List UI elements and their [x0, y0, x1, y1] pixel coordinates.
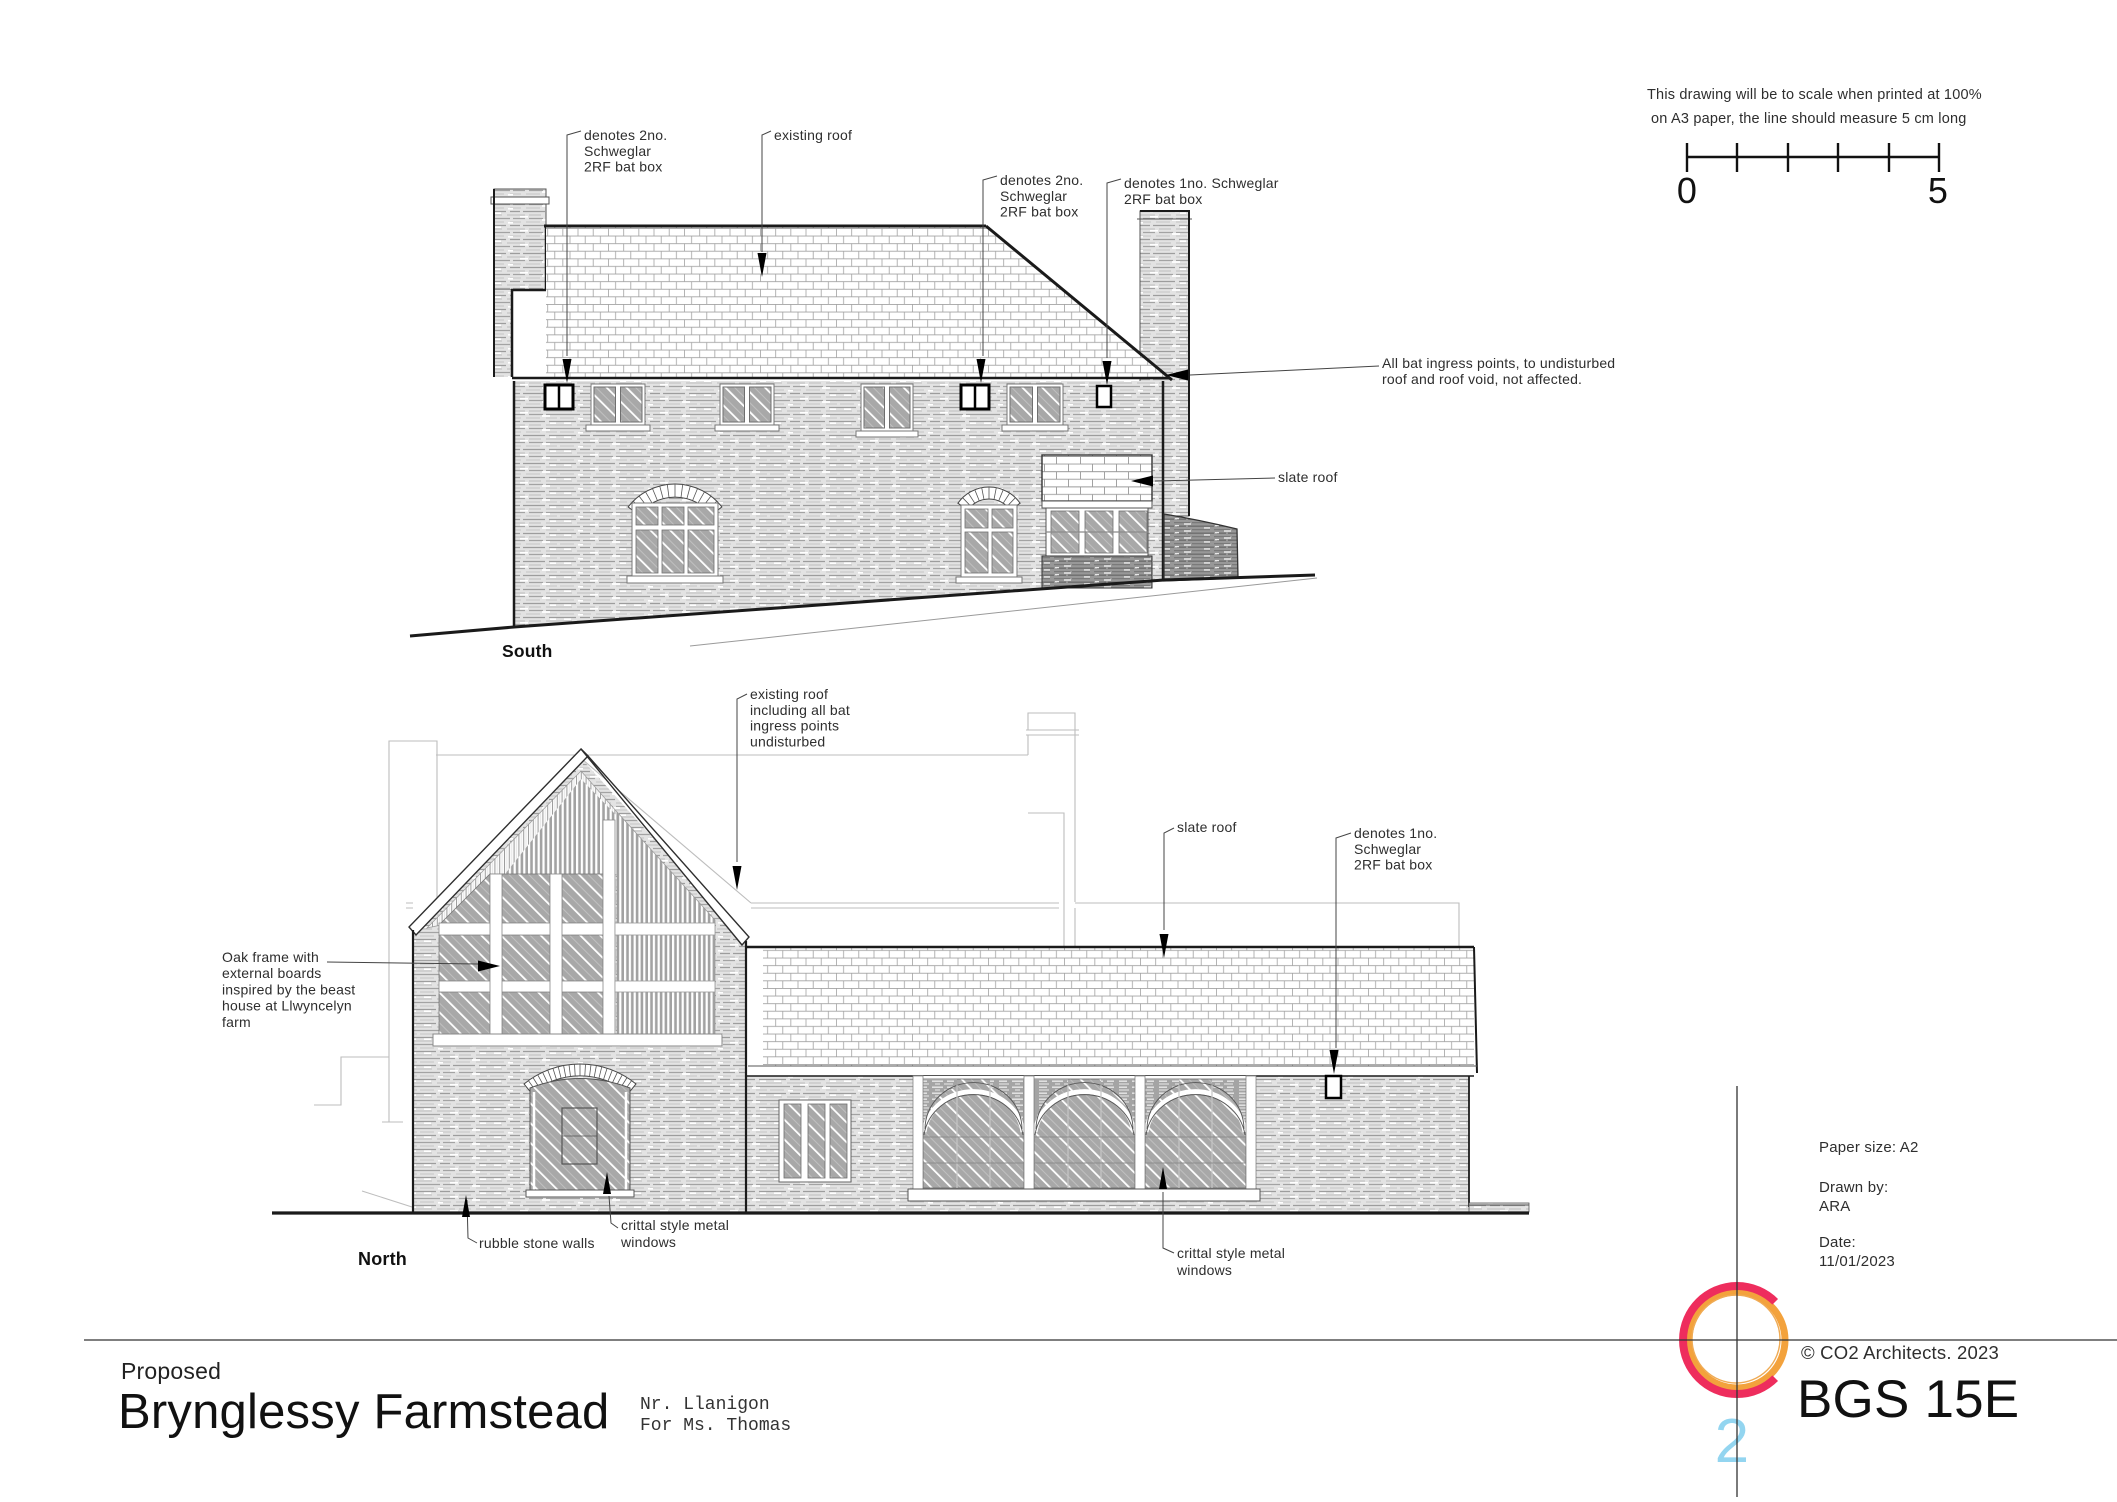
- svg-text:windows: windows: [620, 1234, 676, 1250]
- svg-text:windows: windows: [1176, 1262, 1232, 1278]
- svg-text:2: 2: [1715, 1407, 1750, 1476]
- svg-text:South: South: [502, 641, 553, 661]
- svg-text:Brynglessy Farmstead: Brynglessy Farmstead: [118, 1385, 609, 1439]
- svg-text:All bat ingress points, to und: All bat ingress points, to undisturbed: [1382, 355, 1615, 371]
- svg-text:11/01/2023: 11/01/2023: [1819, 1253, 1895, 1270]
- svg-text:crittal style metal: crittal style metal: [621, 1217, 729, 1233]
- svg-text:Schweglar: Schweglar: [1000, 188, 1067, 204]
- svg-text:2RF bat box: 2RF bat box: [1000, 204, 1078, 220]
- svg-text:external boards: external boards: [222, 965, 322, 981]
- svg-text:denotes 1no. Schweglar: denotes 1no. Schweglar: [1124, 175, 1279, 191]
- svg-text:This drawing will be to scale: This drawing will be to scale when print…: [1647, 87, 1982, 103]
- svg-text:North: North: [358, 1249, 407, 1269]
- svg-text:Schweglar: Schweglar: [1354, 841, 1421, 857]
- svg-text:ARA: ARA: [1819, 1198, 1850, 1215]
- svg-text:For Ms. Thomas: For Ms. Thomas: [640, 1416, 791, 1436]
- svg-text:denotes 2no.: denotes 2no.: [1000, 172, 1083, 188]
- svg-text:crittal style metal: crittal style metal: [1177, 1245, 1285, 1261]
- svg-text:slate roof: slate roof: [1177, 819, 1237, 835]
- svg-text:© CO2 Architects. 2023: © CO2 Architects. 2023: [1801, 1342, 1999, 1363]
- svg-text:Oak frame with: Oak frame with: [222, 949, 319, 965]
- svg-text:0: 0: [1677, 170, 1697, 211]
- svg-text:Proposed: Proposed: [121, 1358, 221, 1384]
- svg-text:2RF bat box: 2RF bat box: [1124, 191, 1202, 207]
- svg-text:existing roof: existing roof: [774, 127, 852, 143]
- svg-text:2RF bat box: 2RF bat box: [1354, 857, 1432, 873]
- svg-text:inspired by the beast: inspired by the beast: [222, 981, 355, 997]
- svg-text:5: 5: [1928, 170, 1948, 211]
- svg-text:denotes 2no.: denotes 2no.: [584, 127, 667, 143]
- svg-text:ingress points: ingress points: [750, 718, 839, 734]
- svg-text:Date:: Date:: [1819, 1234, 1856, 1251]
- svg-text:existing roof: existing roof: [750, 686, 828, 702]
- svg-text:Drawn by:: Drawn by:: [1819, 1179, 1888, 1196]
- svg-text:BGS 15E: BGS 15E: [1797, 1370, 2019, 1429]
- svg-text:Schweglar: Schweglar: [584, 143, 651, 159]
- svg-text:farm: farm: [222, 1014, 251, 1030]
- svg-text:Paper size: A2: Paper size: A2: [1819, 1139, 1919, 1156]
- svg-text:denotes 1no.: denotes 1no.: [1354, 825, 1437, 841]
- svg-text:house at Llwyncelyn: house at Llwyncelyn: [222, 998, 352, 1014]
- svg-text:Nr. Llanigon: Nr. Llanigon: [640, 1395, 770, 1415]
- svg-text:rubble stone walls: rubble stone walls: [479, 1235, 595, 1251]
- svg-text:roof and roof void, not affect: roof and roof void, not affected.: [1382, 371, 1582, 387]
- svg-text:2RF bat box: 2RF bat box: [584, 159, 662, 175]
- svg-text:slate roof: slate roof: [1278, 469, 1338, 485]
- svg-text:including all bat: including all bat: [750, 702, 850, 718]
- svg-text:undisturbed: undisturbed: [750, 733, 825, 749]
- svg-text:on A3 paper, the line should m: on A3 paper, the line should measure 5 c…: [1651, 111, 1967, 127]
